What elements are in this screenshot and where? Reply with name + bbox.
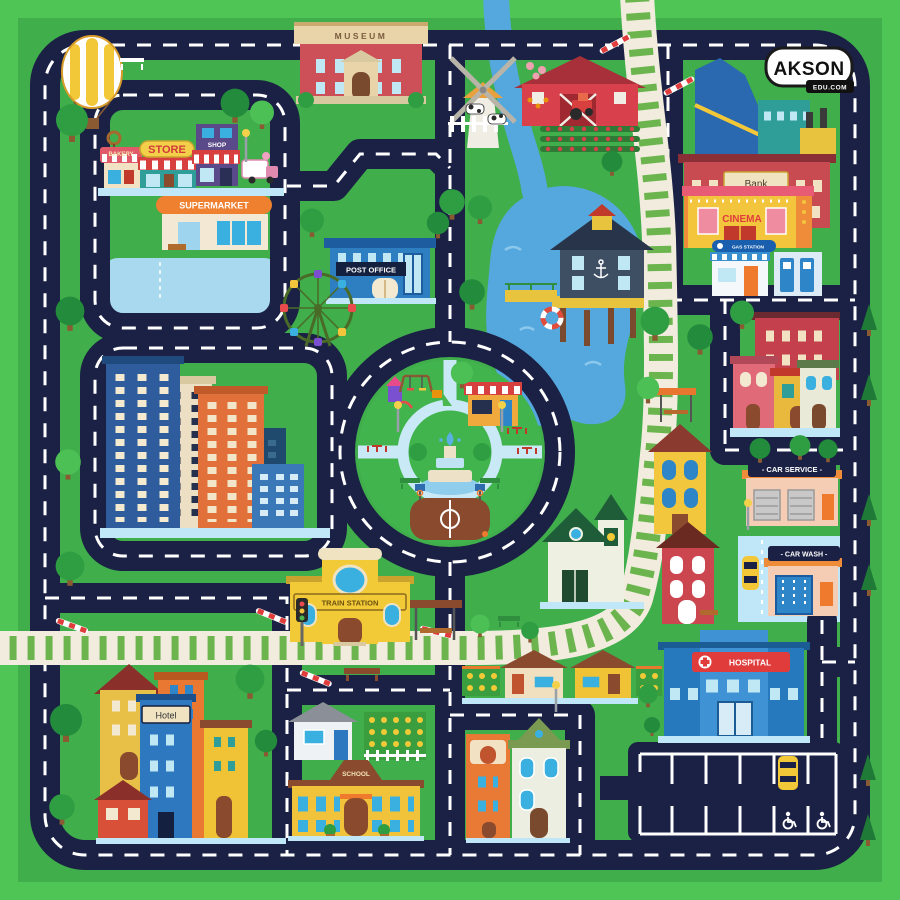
- brand-logo: AKSON EDU.COM: [766, 48, 854, 93]
- parking-lot: [600, 742, 844, 842]
- cinema-label: CINEMA: [722, 214, 761, 225]
- play-mat-illustration: BAKERY STORE SHOP: [0, 0, 900, 900]
- sidewalk: [98, 188, 284, 196]
- hospital-label: HOSPITAL: [729, 658, 771, 668]
- car-service-building: - CAR SERVICE -: [742, 460, 842, 526]
- store-label: STORE: [148, 144, 186, 156]
- park-cafe: [464, 382, 522, 426]
- shop-label: SHOP: [208, 142, 227, 149]
- museum-label: MUSEUM: [335, 31, 388, 41]
- sunflower-garden: [364, 712, 426, 761]
- post-office-label: POST OFFICE: [346, 266, 396, 275]
- cow: [466, 104, 484, 114]
- supermarket-building: SUPERMARKET: [156, 196, 272, 250]
- taxi: [778, 756, 798, 790]
- supermarket-label: SUPERMARKET: [179, 201, 249, 211]
- cow: [488, 114, 506, 124]
- fuel-pump: [800, 258, 814, 292]
- sunflower-garden: [462, 666, 500, 696]
- hotel-label: Hotel: [155, 711, 176, 721]
- dock: [505, 290, 557, 302]
- brand-domain: EDU.COM: [813, 85, 847, 92]
- school-label: SCHOOL: [342, 771, 370, 778]
- shop-building: SHOP: [192, 124, 240, 186]
- museum-building: MUSEUM: [294, 22, 428, 108]
- orange-apartment: [466, 734, 510, 838]
- hospital-building: HOSPITAL: [658, 630, 810, 743]
- store-building: STORE: [138, 141, 196, 188]
- pond: [102, 258, 280, 322]
- gas-station-label: GAS STATION: [732, 245, 765, 251]
- ferris-wheel: [280, 270, 356, 346]
- bakery-label: BAKERY: [108, 152, 133, 158]
- train-station-label: TRAIN STATION: [322, 599, 379, 608]
- yellow-car: [742, 556, 759, 590]
- cinema-building: CINEMA: [682, 186, 814, 248]
- brand-name: AKSON: [773, 59, 844, 80]
- car-service-label: - CAR SERVICE -: [762, 465, 823, 474]
- crop-field: [540, 126, 640, 152]
- city-play-mat: BAKERY STORE SHOP: [0, 0, 900, 900]
- garage-door: [788, 490, 814, 520]
- car-wash-label: - CAR WASH -: [781, 552, 828, 559]
- post-office-building: POST OFFICE: [324, 238, 436, 304]
- fuel-pump: [780, 258, 794, 292]
- roundabout-park: [358, 360, 542, 544]
- garage-door: [754, 490, 780, 520]
